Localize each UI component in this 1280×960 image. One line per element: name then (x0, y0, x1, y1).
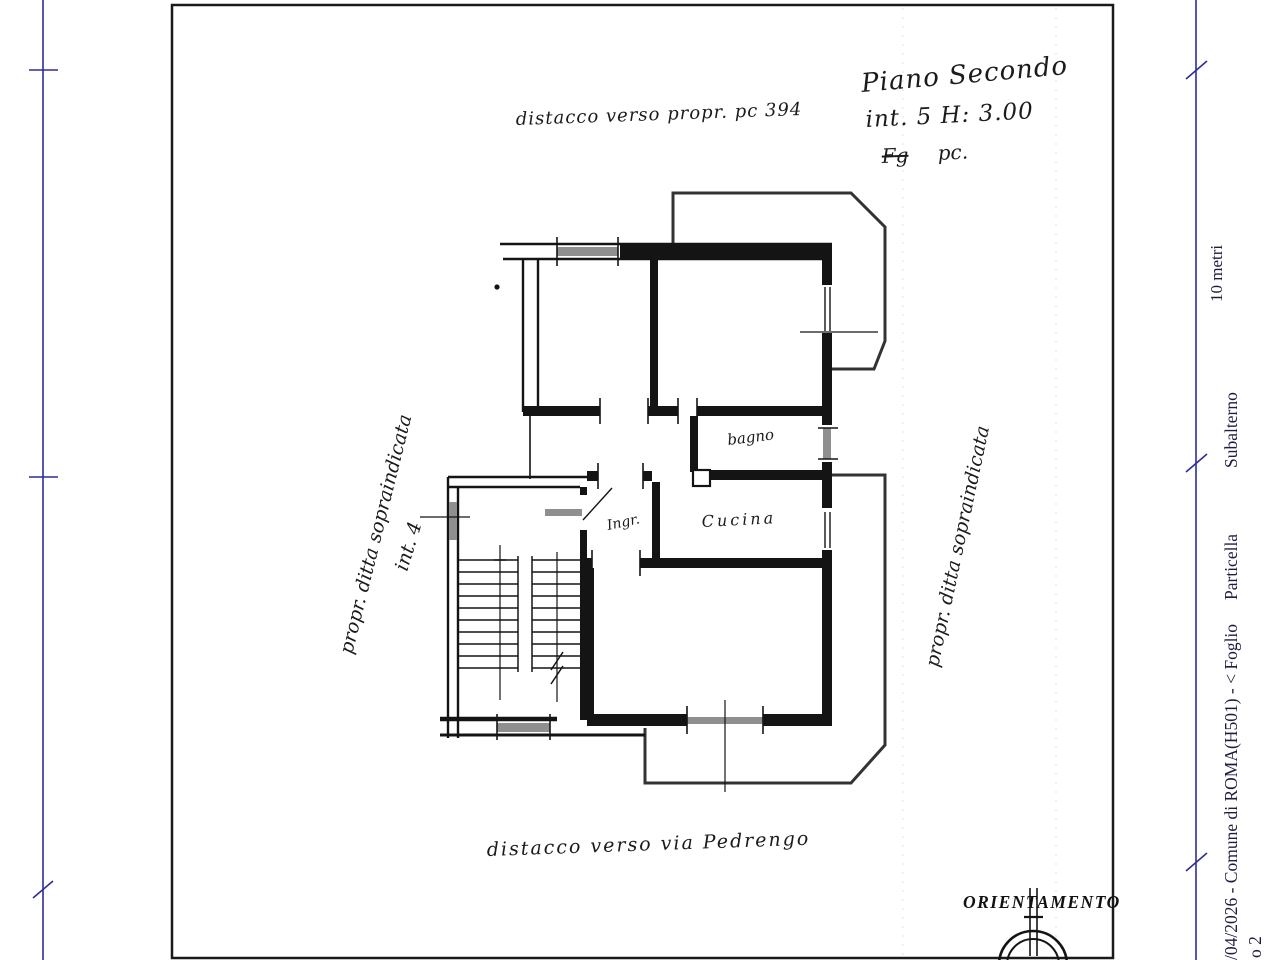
window-bagno (823, 428, 831, 459)
annotation-fg: Fg (880, 143, 909, 168)
bagno-door-jamb (693, 470, 710, 486)
window-top (557, 247, 618, 256)
stamp-particella: Particella (1221, 534, 1241, 600)
left-scale-line (29, 0, 58, 960)
stamp-line1: /04/2026 - Comune di ROMA(H501) - < Fogl… (1221, 624, 1241, 960)
annotation-pc: pc. (937, 139, 969, 165)
scale-bar-label: 10 metri (1207, 245, 1226, 302)
right-scale-bar (1186, 0, 1207, 960)
stamp-subalterno: Subalterno (1221, 392, 1241, 468)
room-label-cucina: Cucina (701, 508, 776, 531)
entrance-door-leaf (545, 509, 582, 516)
floor-plan-canvas: 10 metri /04/2026 - Comune di ROMA(H501)… (0, 0, 1280, 960)
window-stairwell-bottom (497, 723, 550, 732)
window-stairwell-left (449, 502, 457, 540)
stamp-line2-fragment: o 2 (1245, 936, 1265, 958)
cadastral-stamp: /04/2026 - Comune di ROMA(H501) - < Fogl… (1221, 392, 1265, 960)
ink-dot (494, 284, 499, 289)
orientation-title: ORIENTAMENTO (963, 892, 1121, 912)
scanned-floor-plan-page: 10 metri /04/2026 - Comune di ROMA(H501)… (0, 0, 1280, 960)
